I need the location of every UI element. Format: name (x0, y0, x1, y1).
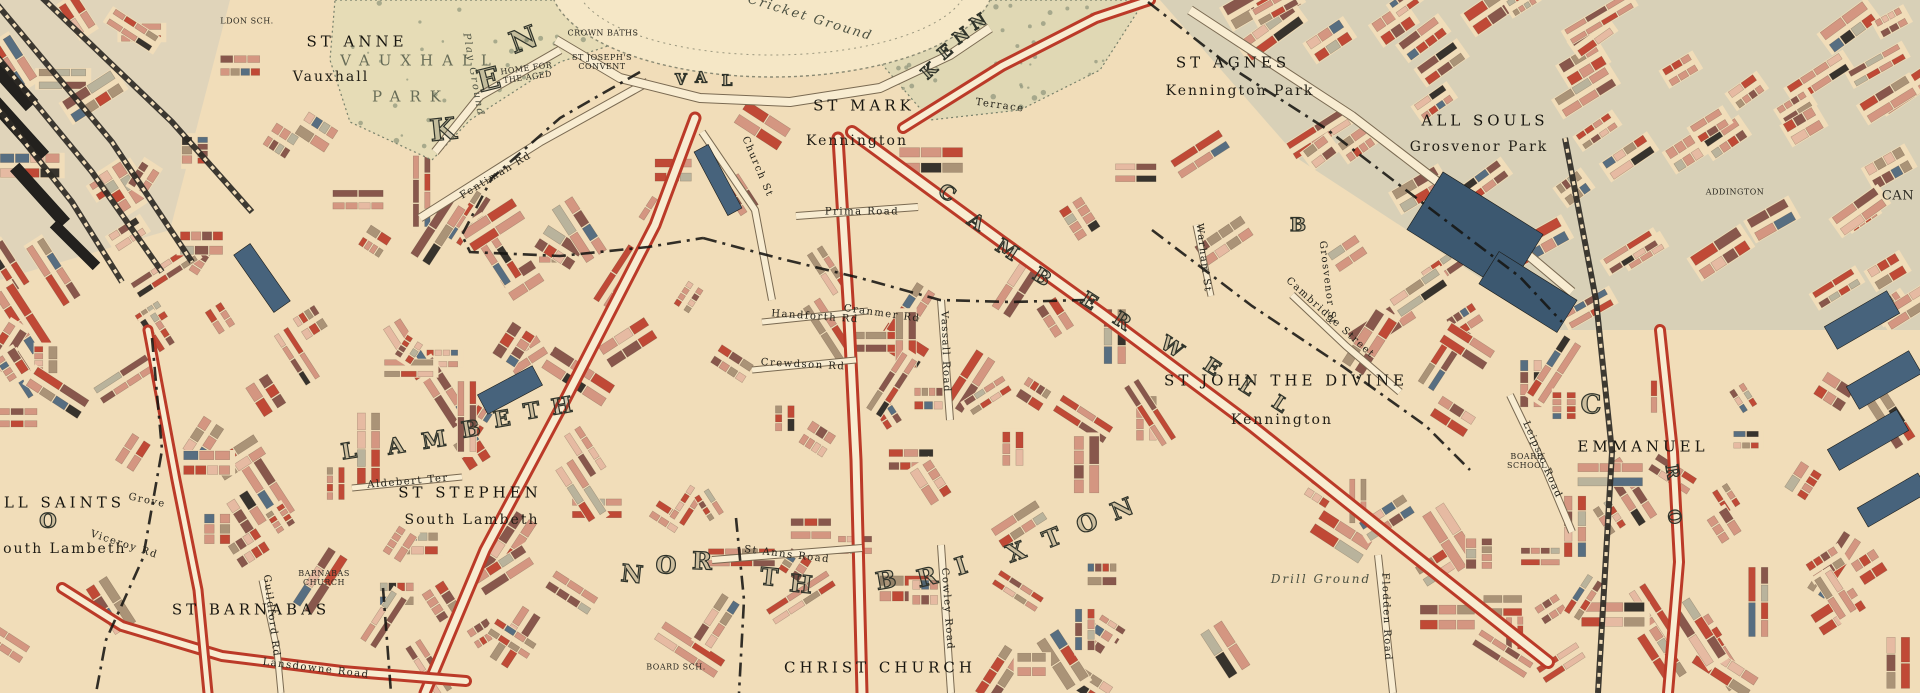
tree-dot (509, 49, 514, 54)
tree-dot (581, 37, 586, 42)
tree-dot (379, 60, 382, 63)
block-row (1014, 652, 1051, 677)
tree-dot (418, 20, 421, 23)
block-row (1002, 428, 1024, 471)
tree-dot (422, 144, 427, 149)
block-row (909, 579, 943, 605)
tree-dot (493, 39, 497, 43)
tree-dot (1041, 90, 1046, 95)
tree-dot (538, 36, 543, 41)
tree-dot (993, 4, 998, 9)
tree-dot (506, 63, 510, 67)
block-row (1552, 389, 1577, 425)
tree-dot (433, 92, 438, 97)
block-row (0, 407, 43, 427)
block-row (204, 510, 231, 549)
block-row (1084, 563, 1122, 586)
block-row (457, 377, 477, 457)
tree-dot (367, 52, 369, 54)
tree-dot (442, 99, 446, 103)
tree-dot (1015, 44, 1019, 48)
block-row (1730, 430, 1764, 449)
block-row (180, 450, 235, 475)
tree-dot (420, 48, 424, 52)
block-row (326, 464, 345, 505)
block-row (217, 55, 266, 77)
tree-dot (1088, 73, 1091, 76)
tree-dot (1001, 28, 1005, 32)
block-row (1074, 605, 1095, 655)
tree-dot (1008, 4, 1012, 8)
block-row (787, 518, 836, 540)
tree-dot (909, 84, 914, 89)
tree-dot (406, 78, 408, 80)
tree-dot (1102, 59, 1105, 62)
tree-dot (978, 21, 982, 25)
tree-dot (1027, 86, 1029, 88)
tree-dot (1085, 6, 1089, 10)
tree-dot (524, 38, 529, 43)
tree-dot (1020, 106, 1022, 108)
block-row (329, 189, 389, 210)
block-row (1465, 535, 1492, 574)
tree-dot (1019, 83, 1022, 86)
block-row (1073, 432, 1100, 498)
block-row (774, 402, 795, 437)
tree-dot (426, 118, 430, 122)
tree-dot (401, 134, 404, 137)
tree-dot (457, 8, 461, 12)
tree-dot (902, 87, 905, 90)
tree-dot (351, 46, 354, 49)
tree-dot (358, 121, 363, 126)
block-row (1517, 547, 1565, 566)
block-row (1748, 563, 1769, 642)
tree-dot (1029, 63, 1031, 65)
tree-dot (518, 47, 523, 52)
block-row (356, 409, 380, 490)
tree-dot (1065, 7, 1069, 11)
tree-dot (393, 103, 398, 108)
tree-dot (1032, 95, 1038, 101)
tree-dot (933, 78, 937, 82)
block-row (1112, 163, 1162, 183)
tree-dot (1094, 60, 1097, 63)
tree-dot (1041, 21, 1046, 26)
tree-dot (442, 40, 445, 43)
tree-dot (1028, 24, 1032, 28)
block-row (911, 387, 948, 410)
block-row (1886, 633, 1911, 693)
tree-dot (904, 65, 908, 69)
tree-dot (1048, 10, 1053, 15)
booth-poverty-map[interactable]: ST ANNEVauxhallST MARKKenningtonST AGNES… (0, 0, 1920, 693)
map-graphics (0, 0, 1920, 693)
tree-dot (896, 66, 901, 71)
tree-dot (377, 0, 382, 5)
tree-dot (485, 64, 487, 66)
tree-dot (493, 67, 497, 71)
tree-dot (990, 94, 996, 100)
tree-dot (394, 138, 400, 144)
